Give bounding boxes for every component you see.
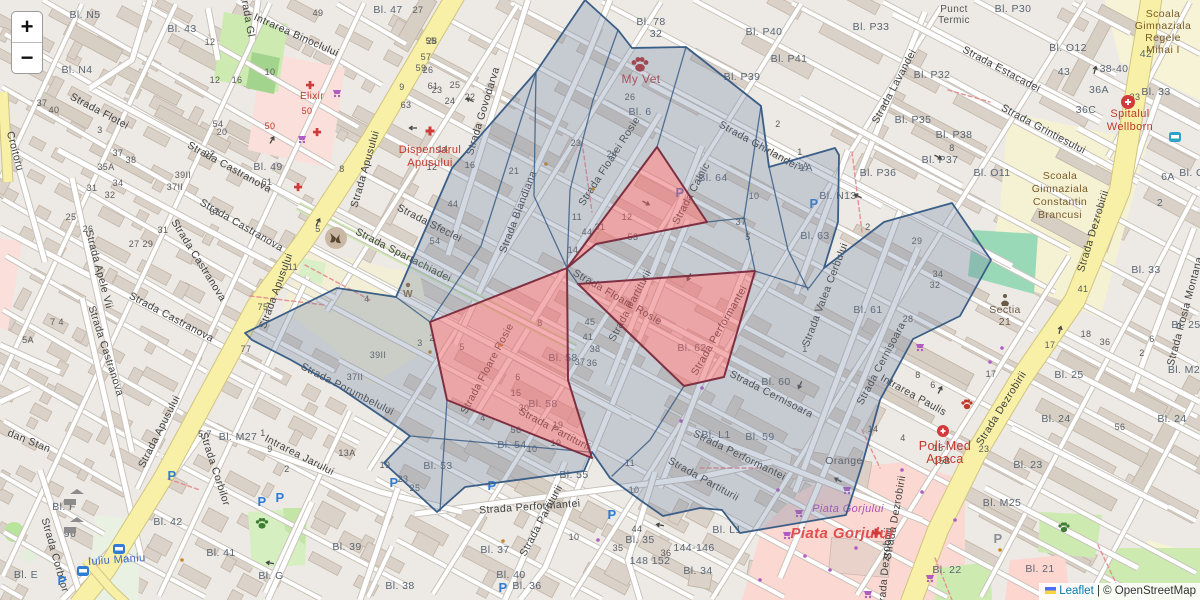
svg-text:50: 50 (302, 106, 313, 116)
svg-text:25: 25 (450, 80, 461, 90)
svg-text:61: 61 (262, 177, 273, 187)
svg-text:Bl. P35: Bl. P35 (895, 114, 932, 126)
svg-text:Wellborn: Wellborn (1107, 121, 1153, 133)
svg-text:37: 37 (37, 98, 48, 108)
svg-text:9: 9 (399, 82, 404, 92)
svg-text:Bl. E: Bl. E (14, 569, 38, 581)
svg-text:Bl. P41: Bl. P41 (771, 53, 808, 65)
svg-text:3: 3 (97, 125, 102, 135)
svg-text:2: 2 (865, 222, 870, 232)
svg-text:P: P (257, 494, 266, 509)
svg-text:32: 32 (105, 190, 116, 200)
svg-text:36: 36 (1100, 337, 1111, 347)
svg-text:Bl. 22: Bl. 22 (932, 564, 961, 576)
svg-text:Elixir: Elixir (300, 91, 324, 102)
svg-text:41: 41 (1078, 284, 1089, 294)
svg-text:2: 2 (1139, 348, 1144, 358)
svg-text:Bl. 47: Bl. 47 (373, 4, 402, 16)
svg-text:8: 8 (949, 143, 954, 153)
svg-text:Spitalul: Spitalul (1110, 108, 1149, 120)
svg-text:Bl. 21: Bl. 21 (1025, 563, 1054, 575)
svg-text:6: 6 (930, 380, 935, 390)
svg-text:11: 11 (288, 262, 298, 272)
svg-text:Bl. 25: Bl. 25 (1171, 319, 1200, 331)
svg-text:17: 17 (986, 369, 997, 379)
svg-text:Bl. 25: Bl. 25 (1054, 369, 1083, 381)
svg-text:38-40: 38-40 (1100, 63, 1129, 75)
svg-text:37II: 37II (167, 182, 184, 192)
svg-text:61: 61 (428, 81, 439, 91)
svg-text:Bl. 34: Bl. 34 (683, 565, 712, 577)
svg-text:75: 75 (258, 302, 269, 312)
svg-text:P: P (607, 507, 616, 522)
svg-text:Termic: Termic (938, 15, 970, 26)
svg-text:10: 10 (569, 532, 580, 542)
svg-text:Brancusi: Brancusi (1038, 209, 1082, 221)
svg-text:Bl. 24: Bl. 24 (1041, 413, 1070, 425)
svg-text:24: 24 (445, 96, 456, 106)
svg-text:Bl. P32: Bl. P32 (914, 69, 951, 81)
svg-text:Punct: Punct (940, 4, 968, 15)
svg-text:Bl. O11: Bl. O11 (973, 167, 1010, 179)
svg-text:8: 8 (915, 370, 920, 380)
svg-text:35A: 35A (97, 162, 114, 172)
svg-text:Regele: Regele (1145, 32, 1181, 44)
svg-text:Bl. 39: Bl. 39 (332, 541, 361, 553)
svg-text:Bl. M2: Bl. M2 (1168, 364, 1200, 376)
svg-text:7 4: 7 4 (50, 317, 64, 327)
svg-text:17: 17 (1045, 340, 1056, 350)
svg-text:31: 31 (158, 225, 169, 235)
svg-text:77: 77 (241, 344, 252, 354)
svg-text:50: 50 (265, 121, 276, 131)
svg-text:2: 2 (775, 119, 780, 129)
svg-text:Apaca: Apaca (926, 452, 963, 466)
svg-text:37: 37 (113, 148, 124, 158)
svg-text:13A: 13A (338, 448, 355, 458)
svg-text:Bl. G: Bl. G (258, 570, 283, 582)
svg-text:12: 12 (210, 75, 221, 85)
svg-text:2: 2 (1157, 197, 1163, 209)
svg-text:Bl. 43: Bl. 43 (167, 23, 196, 35)
svg-text:Bl. M25: Bl. M25 (983, 497, 1021, 509)
svg-text:Bl. O1: Bl. O1 (1179, 167, 1200, 179)
svg-text:Bl. N5: Bl. N5 (70, 9, 101, 21)
svg-text:Bl. 36: Bl. 36 (512, 580, 541, 592)
svg-text:Bl. 78: Bl. 78 (636, 16, 665, 28)
svg-text:16: 16 (232, 75, 243, 85)
svg-text:49: 49 (313, 8, 324, 18)
svg-text:39II: 39II (175, 170, 192, 180)
svg-text:144-146: 144-146 (673, 542, 714, 554)
svg-text:4: 4 (900, 433, 905, 443)
svg-text:Bl. P40: Bl. P40 (746, 26, 783, 38)
svg-text:12: 12 (205, 37, 216, 47)
svg-text:Bl. 42: Bl. 42 (153, 516, 182, 528)
svg-text:Scoala: Scoala (1146, 8, 1181, 20)
svg-text:21: 21 (999, 316, 1011, 328)
svg-text:44: 44 (632, 524, 643, 534)
svg-text:31: 31 (87, 183, 98, 193)
svg-text:Gimnaziala: Gimnaziala (1032, 183, 1089, 195)
svg-text:P: P (389, 475, 398, 490)
svg-text:38: 38 (126, 155, 137, 165)
svg-text:Scoala: Scoala (1043, 170, 1078, 182)
svg-text:1: 1 (260, 428, 265, 438)
svg-text:P: P (167, 468, 176, 483)
svg-text:63: 63 (210, 207, 221, 217)
svg-text:26: 26 (83, 224, 94, 234)
svg-text:Bl. O12: Bl. O12 (1049, 42, 1087, 54)
svg-text:35: 35 (613, 543, 624, 553)
svg-text:Bl. P30: Bl. P30 (995, 3, 1032, 15)
svg-text:2: 2 (284, 464, 289, 474)
svg-text:P: P (993, 531, 1002, 546)
svg-text:5A: 5A (22, 335, 34, 345)
svg-text:59: 59 (416, 63, 427, 73)
svg-text:5 7: 5 7 (198, 429, 212, 439)
svg-text:32: 32 (650, 28, 662, 40)
svg-text:1: 1 (797, 147, 802, 157)
svg-text:Bl. 38: Bl. 38 (385, 580, 414, 592)
svg-text:27: 27 (413, 5, 424, 15)
svg-text:10: 10 (265, 67, 276, 77)
svg-text:Bl. 37: Bl. 37 (480, 544, 509, 556)
svg-text:Bl. 49: Bl. 49 (253, 161, 282, 173)
svg-text:36C: 36C (1076, 104, 1096, 116)
svg-text:P: P (498, 580, 507, 595)
svg-text:Bl. P36: Bl. P36 (860, 167, 897, 179)
svg-text:Poli-Med: Poli-Med (919, 439, 972, 453)
svg-text:Bl. 24: Bl. 24 (1157, 413, 1186, 425)
svg-text:57: 57 (421, 52, 432, 62)
svg-text:55: 55 (426, 36, 437, 46)
svg-text:6: 6 (1149, 334, 1154, 344)
svg-text:34: 34 (113, 178, 124, 188)
svg-text:Mihai I: Mihai I (1146, 44, 1180, 56)
svg-text:Constantin: Constantin (1033, 196, 1087, 208)
svg-text:36A: 36A (1089, 84, 1109, 96)
svg-text:63: 63 (401, 100, 412, 110)
svg-text:27 29: 27 29 (129, 239, 154, 249)
svg-text:Bl. 35: Bl. 35 (625, 534, 654, 546)
svg-text:40: 40 (49, 105, 60, 115)
svg-text:Bl. 33: Bl. 33 (1131, 264, 1160, 276)
svg-text:Bl. P33: Bl. P33 (853, 21, 890, 33)
svg-text:P: P (275, 490, 284, 505)
svg-text:Bl. N4: Bl. N4 (62, 64, 93, 76)
svg-text:56: 56 (1115, 422, 1126, 432)
svg-text:Dispensarul: Dispensarul (399, 144, 461, 156)
svg-text:6A: 6A (1161, 171, 1175, 183)
svg-text:Gimnaziala: Gimnaziala (1135, 20, 1192, 32)
svg-text:22: 22 (205, 149, 216, 159)
svg-text:Apusului: Apusului (407, 157, 452, 169)
svg-text:P: P (57, 573, 66, 588)
svg-text:Bl. P38: Bl. P38 (936, 129, 973, 141)
svg-text:Bl. 41: Bl. 41 (206, 547, 235, 559)
svg-text:9: 9 (267, 444, 272, 454)
svg-text:8: 8 (339, 164, 344, 174)
svg-text:Bl. 23: Bl. 23 (1013, 459, 1042, 471)
svg-text:25: 25 (66, 212, 77, 222)
svg-text:54: 54 (213, 119, 224, 129)
svg-text:18: 18 (1081, 329, 1092, 339)
svg-text:36: 36 (661, 548, 672, 558)
svg-text:43: 43 (1058, 66, 1070, 78)
svg-text:Bl. M27: Bl. M27 (219, 431, 257, 443)
svg-text:23: 23 (979, 444, 990, 454)
svg-text:Bl. 33: Bl. 33 (1141, 86, 1170, 98)
